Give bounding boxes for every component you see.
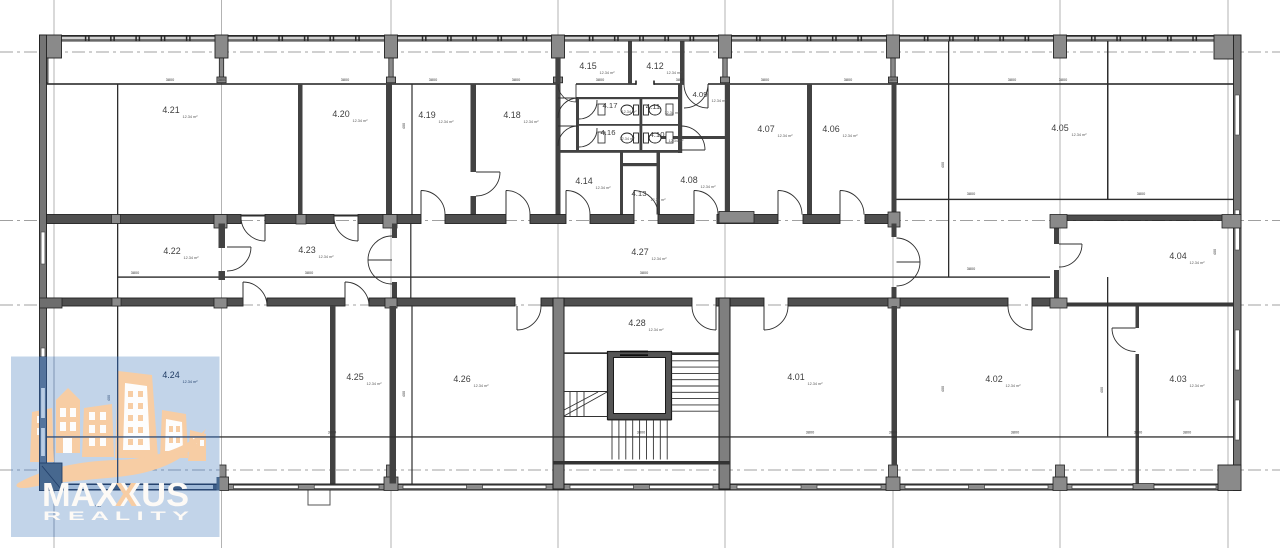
svg-text:400: 400 — [941, 162, 945, 168]
svg-text:12.34 m²: 12.34 m² — [665, 111, 681, 115]
svg-text:4.23: 4.23 — [298, 245, 315, 255]
svg-text:12.34 m²: 12.34 m² — [184, 256, 200, 260]
svg-text:4.11: 4.11 — [646, 102, 660, 111]
svg-text:12.34 m²: 12.34 m² — [712, 99, 728, 103]
svg-text:12.34 m²: 12.34 m² — [474, 384, 490, 388]
svg-text:3800: 3800 — [640, 271, 648, 275]
svg-text:400: 400 — [1100, 387, 1104, 393]
svg-text:3800: 3800 — [1137, 192, 1145, 196]
svg-text:4.17: 4.17 — [603, 101, 618, 110]
svg-text:12.34 m²: 12.34 m² — [367, 382, 383, 386]
svg-text:12.34 m²: 12.34 m² — [651, 198, 667, 202]
svg-text:400: 400 — [941, 386, 945, 392]
svg-text:4.10: 4.10 — [650, 130, 665, 139]
svg-text:12.34 m²: 12.34 m² — [620, 137, 636, 141]
svg-text:3800: 3800 — [676, 78, 684, 82]
svg-text:3800: 3800 — [761, 78, 769, 82]
svg-text:12.34 m²: 12.34 m² — [183, 380, 199, 384]
svg-text:12.34 m²: 12.34 m² — [1190, 384, 1206, 388]
svg-text:12.34 m²: 12.34 m² — [1006, 384, 1022, 388]
svg-text:12.34 m²: 12.34 m² — [183, 115, 199, 119]
svg-text:4.02: 4.02 — [985, 374, 1002, 384]
svg-text:3800: 3800 — [844, 78, 852, 82]
svg-text:4.01: 4.01 — [787, 372, 804, 382]
svg-text:3800: 3800 — [967, 192, 975, 196]
svg-text:400: 400 — [402, 391, 406, 397]
svg-text:4.19: 4.19 — [418, 110, 435, 120]
svg-text:3800: 3800 — [1008, 78, 1016, 82]
svg-text:4.08: 4.08 — [680, 175, 697, 185]
svg-text:4.24: 4.24 — [162, 370, 179, 380]
svg-text:3800: 3800 — [341, 78, 349, 82]
svg-text:12.34 m²: 12.34 m² — [1072, 133, 1088, 137]
svg-text:4.28: 4.28 — [628, 318, 645, 328]
svg-text:4.15: 4.15 — [579, 61, 596, 71]
svg-text:4.18: 4.18 — [503, 110, 520, 120]
svg-text:4.16: 4.16 — [601, 128, 616, 137]
svg-text:12.34 m²: 12.34 m² — [524, 120, 540, 124]
svg-text:3800: 3800 — [1134, 431, 1142, 435]
svg-text:400: 400 — [107, 395, 111, 401]
svg-text:4.20: 4.20 — [332, 109, 349, 119]
svg-text:3800: 3800 — [889, 78, 897, 82]
svg-text:12.34 m²: 12.34 m² — [1190, 261, 1206, 265]
svg-text:4.26: 4.26 — [453, 374, 470, 384]
svg-text:12.34 m²: 12.34 m² — [596, 186, 612, 190]
svg-text:400: 400 — [402, 123, 406, 129]
svg-text:12.34 m²: 12.34 m² — [600, 71, 616, 75]
svg-text:4.06: 4.06 — [822, 124, 839, 134]
svg-text:3800: 3800 — [1011, 431, 1019, 435]
svg-text:12.34 m²: 12.34 m² — [649, 328, 665, 332]
svg-text:3800: 3800 — [131, 271, 139, 275]
svg-text:3800: 3800 — [967, 267, 975, 271]
svg-text:3800: 3800 — [889, 431, 897, 435]
svg-text:3800: 3800 — [1059, 78, 1067, 82]
svg-text:4.21: 4.21 — [162, 105, 179, 115]
svg-text:12.34 m²: 12.34 m² — [439, 120, 455, 124]
svg-text:3800: 3800 — [596, 78, 604, 82]
svg-text:400: 400 — [1213, 249, 1217, 255]
svg-text:4.14: 4.14 — [575, 176, 592, 186]
svg-text:12.34 m²: 12.34 m² — [669, 139, 685, 143]
svg-text:4.04: 4.04 — [1169, 251, 1186, 261]
svg-text:4.22: 4.22 — [163, 246, 180, 256]
svg-text:3800: 3800 — [637, 431, 645, 435]
svg-text:3800: 3800 — [806, 431, 814, 435]
svg-text:12.34 m²: 12.34 m² — [843, 134, 859, 138]
svg-text:X: X — [115, 476, 137, 513]
svg-text:3800: 3800 — [512, 78, 520, 82]
svg-text:3800: 3800 — [166, 78, 174, 82]
svg-text:4.05: 4.05 — [1051, 123, 1068, 133]
svg-text:R E A L I T Y: R E A L I T Y — [43, 509, 189, 523]
svg-text:12.34 m²: 12.34 m² — [667, 71, 683, 75]
svg-text:12.34 m²: 12.34 m² — [652, 257, 668, 261]
svg-text:4.27: 4.27 — [631, 247, 648, 257]
svg-text:12.34 m²: 12.34 m² — [808, 382, 824, 386]
svg-text:12.34 m²: 12.34 m² — [778, 134, 794, 138]
svg-text:3800: 3800 — [218, 78, 226, 82]
svg-text:3800: 3800 — [1183, 431, 1191, 435]
svg-text:3800: 3800 — [328, 431, 336, 435]
svg-text:3800: 3800 — [429, 78, 437, 82]
svg-text:3800: 3800 — [305, 271, 313, 275]
svg-text:12.34 m²: 12.34 m² — [353, 119, 369, 123]
svg-text:4.07: 4.07 — [757, 124, 774, 134]
svg-text:4.03: 4.03 — [1169, 374, 1186, 384]
svg-text:4.25: 4.25 — [346, 372, 363, 382]
svg-text:12.34 m²: 12.34 m² — [701, 185, 717, 189]
svg-text:4.12: 4.12 — [646, 61, 663, 71]
svg-text:4.09: 4.09 — [693, 90, 708, 99]
svg-text:12.34 m²: 12.34 m² — [622, 110, 638, 114]
svg-text:12.34 m²: 12.34 m² — [319, 255, 335, 259]
svg-text:4.13: 4.13 — [632, 189, 647, 198]
